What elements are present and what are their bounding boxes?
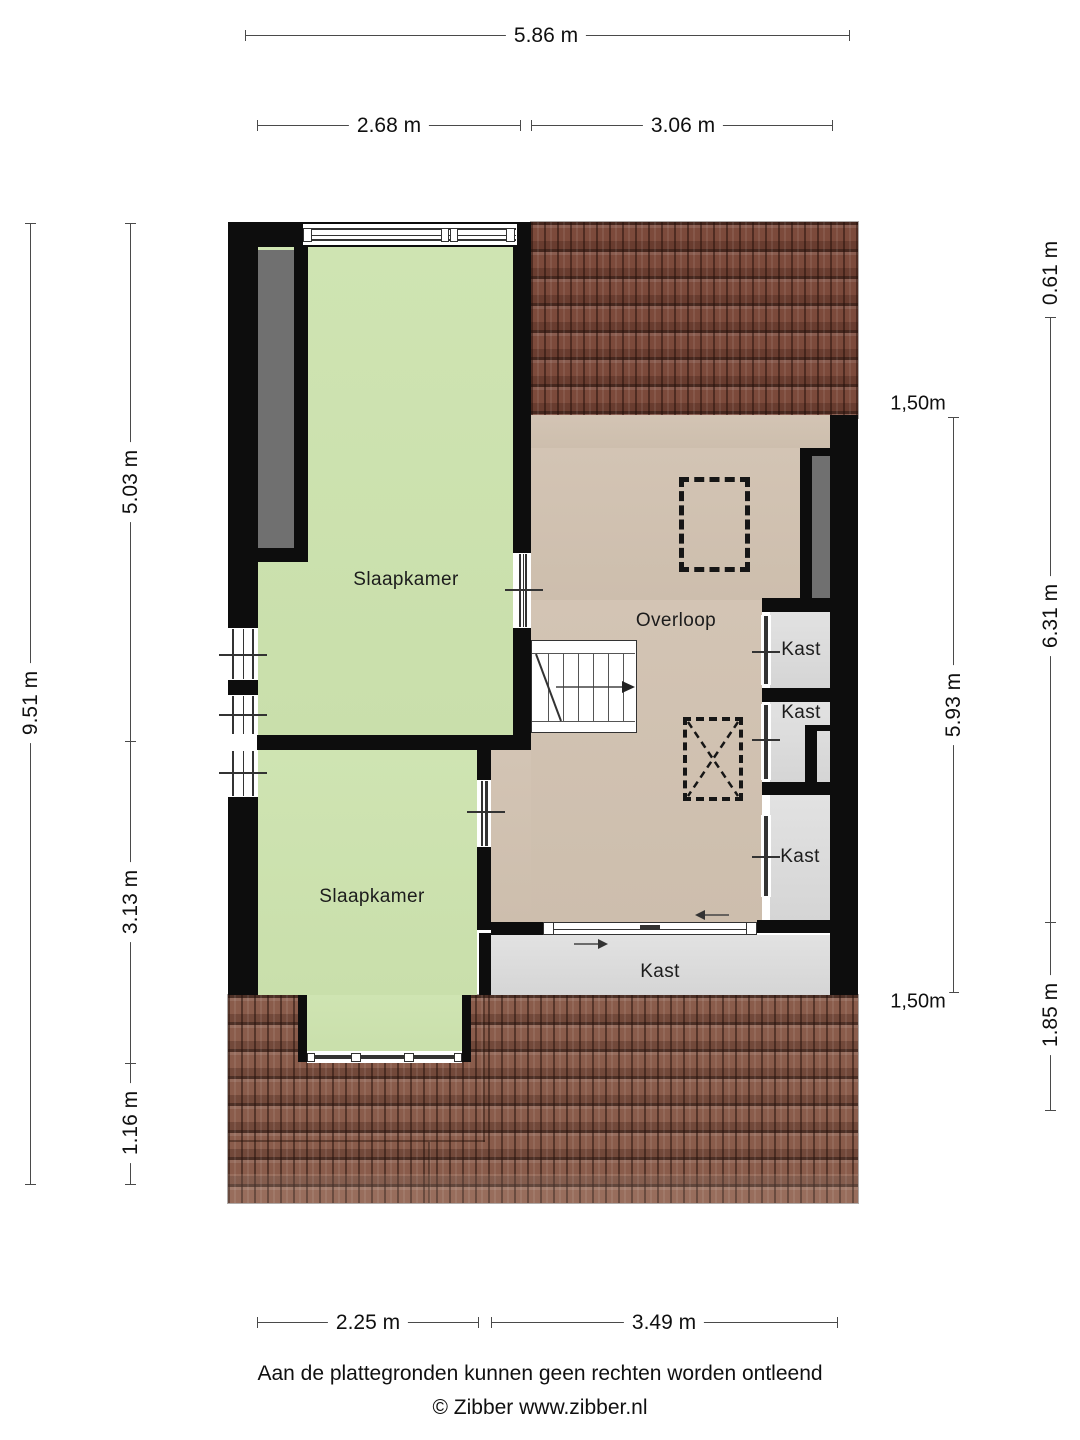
door-mark (752, 651, 780, 653)
window-bedroom2-landing (478, 780, 491, 847)
closet-1-door (761, 615, 771, 685)
wall-bedroom-divider (257, 735, 531, 750)
dim-tick (125, 223, 136, 224)
dim-label-left-lower: 1.16 m (119, 1083, 143, 1163)
wall-bedroom2-right-upper (477, 750, 491, 780)
door-mark (752, 739, 780, 741)
wall-left-mid (228, 680, 258, 695)
window-cap (307, 1053, 315, 1062)
dim-tick (531, 120, 532, 131)
room-label-closet-3: Kast (780, 846, 820, 868)
wall-closet1-closet2 (762, 688, 830, 702)
wall-closet1-top (762, 598, 830, 612)
dim-label-left-upper: 5.03 m (119, 442, 143, 522)
wall-left-lower (228, 797, 258, 995)
dim-label-left-total: 9.51 m (19, 663, 43, 743)
room-label-closet-bottom: Kast (640, 961, 680, 983)
window-left-3 (229, 750, 257, 797)
sliding-door-cap (746, 922, 757, 935)
opening-x-lines-icon (687, 721, 739, 797)
wall-left-upper (228, 222, 258, 628)
window-divider (351, 1053, 361, 1062)
window-divider (441, 228, 449, 242)
dim-tick (257, 120, 258, 131)
wall-dormer-left (298, 995, 307, 1062)
wall-closet2-closet3 (762, 782, 830, 795)
dim-tick (948, 992, 959, 993)
wall-closet2-notch-side (805, 725, 817, 783)
dim-tick (520, 120, 521, 131)
wall-low-zone-bottom (258, 548, 308, 562)
wall-bedroom2-right-lower (477, 847, 491, 930)
bedroom-bottom-floor (258, 750, 477, 995)
dim-tick (849, 30, 850, 41)
sliding-door-cap (543, 922, 554, 935)
wall-closet3-bottom (757, 920, 830, 933)
roof-seam-vertical-1 (483, 995, 485, 1142)
dim-tick (832, 120, 833, 131)
dim-tick (125, 1184, 136, 1185)
dim-label-bottom-left: 2.25 m (328, 1311, 408, 1335)
dim-tick (1045, 922, 1056, 923)
dim-label-left-middle: 3.13 m (119, 862, 143, 942)
dim-tick (948, 417, 959, 418)
wall-dormer-right (462, 995, 471, 1062)
wall-bedroom1-right-upper (513, 222, 531, 553)
wall-closet-bottom-left (479, 933, 491, 995)
floor-plan-page: Slaapkamer Slaapkamer Overloop Kast Kast… (0, 0, 1080, 1440)
low-ceiling-zone-right-top (812, 455, 830, 598)
wall-right-outer (830, 415, 858, 995)
dim-label-right-lower: 1.85 m (1039, 975, 1063, 1055)
room-label-closet-2: Kast (781, 702, 821, 724)
window-cap (303, 228, 312, 242)
height-limit-label-top: 1,50m (887, 393, 949, 416)
landing-floor-b (531, 448, 800, 600)
footer-credit: © Zibber www.zibber.nl (0, 1396, 1080, 1420)
window-top-facade (303, 224, 517, 245)
sliding-door-leaf-mark (640, 925, 660, 929)
window-mark (219, 654, 267, 656)
window-mark (219, 714, 267, 716)
bedroom-bottom-dormer-floor (307, 995, 462, 1055)
room-label-landing: Overloop (636, 610, 716, 632)
room-label-bedroom-bottom: Slaapkamer (319, 886, 424, 908)
closet-2-door (761, 704, 771, 780)
dim-tick (257, 1317, 258, 1328)
dim-label-top-total: 5.86 m (506, 24, 586, 48)
room-label-bedroom-top: Slaapkamer (353, 569, 458, 591)
dim-label-top-right: 3.06 m (643, 114, 723, 138)
dim-tick (125, 1063, 136, 1064)
window-cap (506, 228, 515, 242)
dim-tick (125, 741, 136, 742)
dim-tick (25, 1184, 36, 1185)
landing-floor-d (491, 750, 531, 922)
stairs-direction-arrow-icon (532, 641, 638, 734)
low-ceiling-zone-left (258, 250, 294, 548)
dim-tick (478, 1317, 479, 1328)
window-mark (219, 772, 267, 774)
door-mark (752, 856, 780, 858)
dim-tick (1045, 317, 1056, 318)
dim-tick (1045, 1110, 1056, 1111)
sliding-door-arrow-left-icon (695, 908, 731, 922)
height-limit-label-bottom: 1,50m (887, 991, 949, 1014)
skylight-dashed-marker (679, 477, 750, 572)
dim-label-top-left: 2.68 m (349, 114, 429, 138)
window-divider (450, 228, 458, 242)
dim-label-right-upper: 0.61 m (1039, 233, 1063, 313)
wall-right-inner-vertical (800, 448, 812, 600)
window-mark (505, 589, 543, 591)
dim-label-right-middle: 6.31 m (1039, 576, 1063, 656)
dim-tick (245, 30, 246, 41)
dim-tick (837, 1317, 838, 1328)
dim-label-height-span: 5.93 m (942, 665, 966, 745)
staircase (531, 640, 637, 733)
window-cap (454, 1053, 462, 1062)
dim-label-bottom-right: 3.49 m (624, 1311, 704, 1335)
wall-low-zone-side (294, 247, 308, 562)
room-label-closet-1: Kast (781, 639, 821, 661)
roof-seam-horizontal (229, 1140, 485, 1142)
window-divider (404, 1053, 414, 1062)
roof-tiles-top-right (531, 222, 858, 418)
window-bedroom1-landing (516, 553, 530, 628)
wall-landing-bottom-left (491, 922, 543, 935)
footer-disclaimer: Aan de plattegronden kunnen geen rechten… (0, 1362, 1080, 1386)
window-dormer (307, 1051, 462, 1063)
landing-floor-a (531, 415, 830, 448)
wall-bedroom1-right-lower (513, 628, 531, 750)
window-mark (467, 811, 505, 813)
opening-x-marker (683, 717, 743, 801)
roof-eave-highlight (228, 1174, 858, 1203)
sliding-door-arrow-right-icon (572, 937, 608, 951)
dim-line-left-upper (130, 223, 131, 1184)
dim-tick (491, 1317, 492, 1328)
dim-tick (25, 223, 36, 224)
